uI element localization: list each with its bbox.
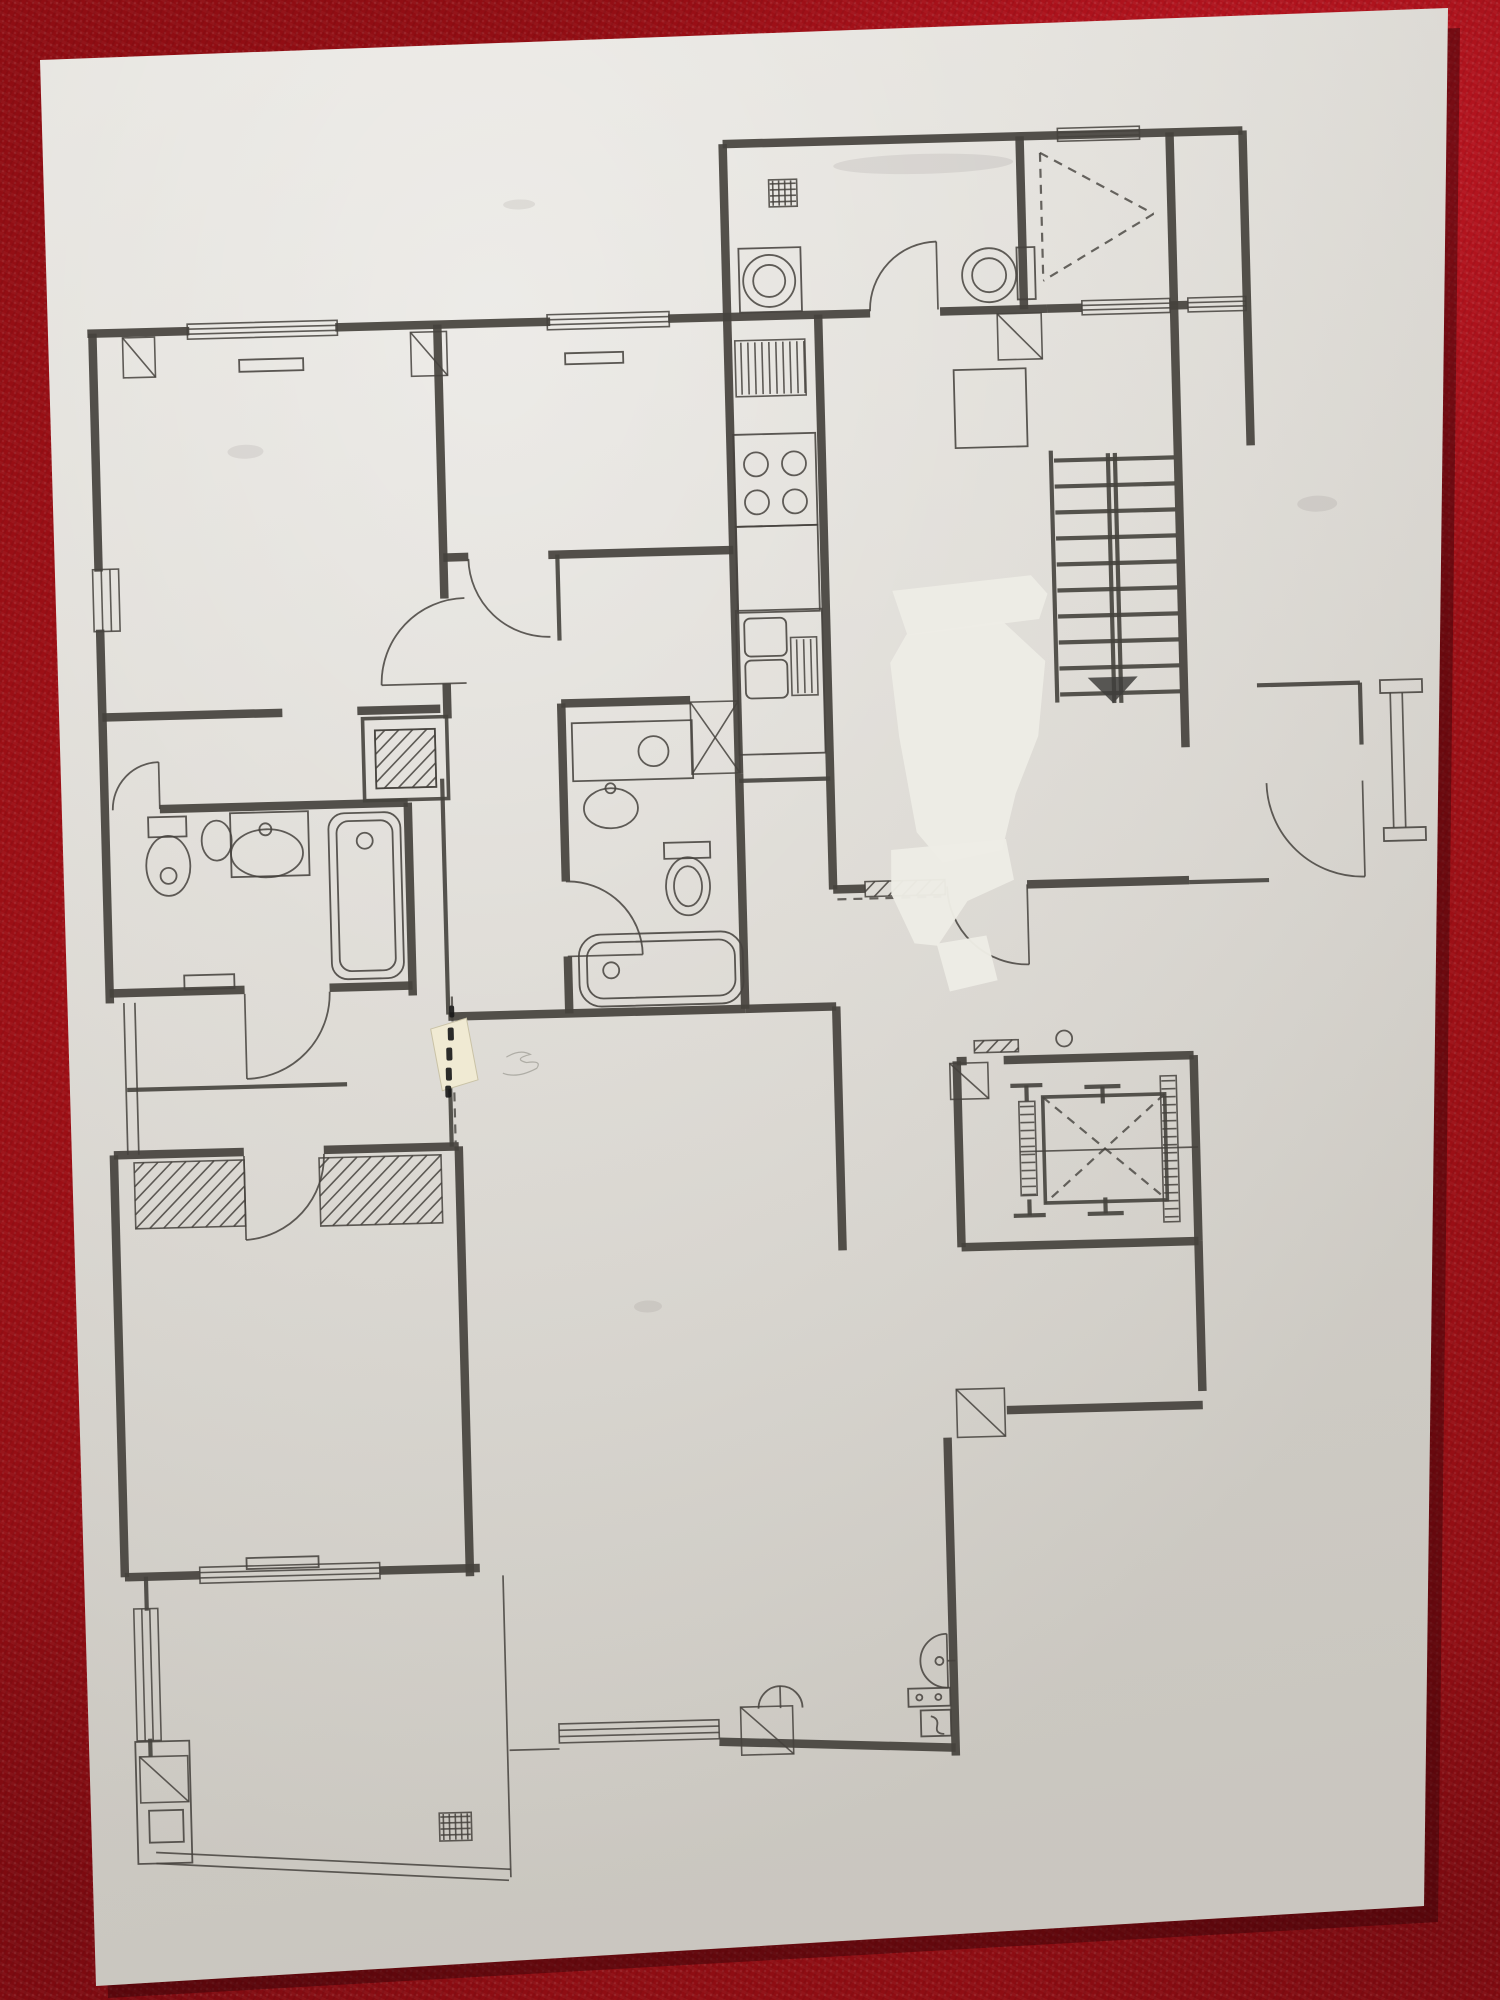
floor-plan-photo bbox=[0, 0, 1500, 2000]
photo-of-floor-plan bbox=[0, 0, 1500, 2000]
